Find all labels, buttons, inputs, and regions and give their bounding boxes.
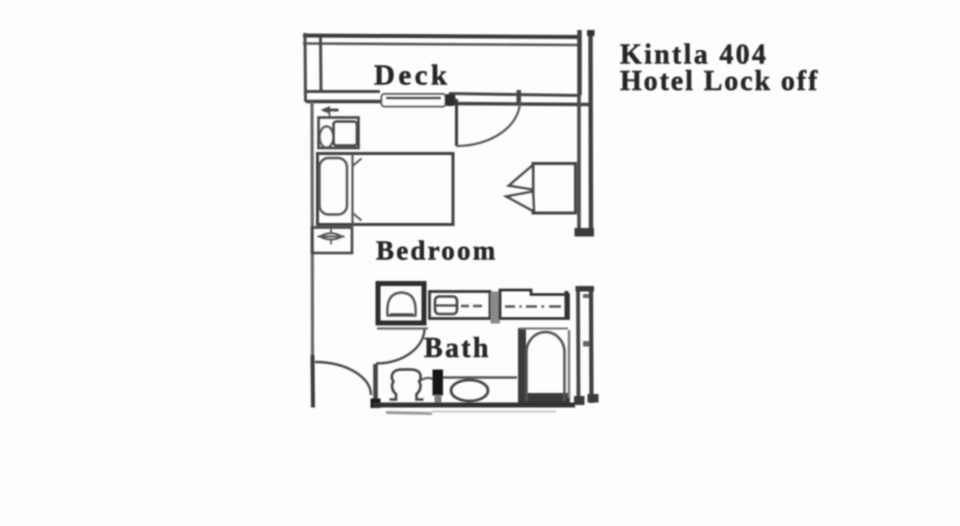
svg-text:Deck: Deck	[374, 60, 450, 92]
svg-text:Hotel Lock off: Hotel Lock off	[620, 66, 819, 97]
svg-text:Bedroom: Bedroom	[376, 236, 497, 266]
svg-text:Bath: Bath	[424, 333, 491, 364]
